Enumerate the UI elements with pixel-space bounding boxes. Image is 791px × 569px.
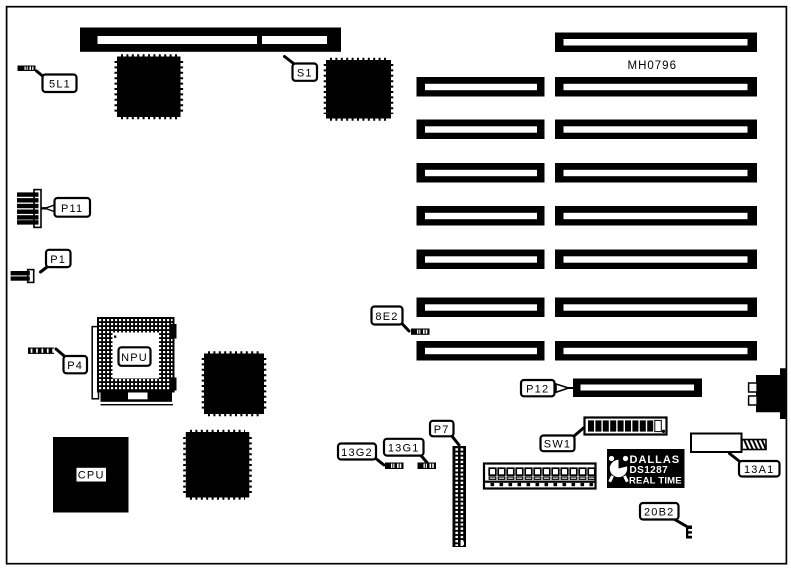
svg-text:DS1287: DS1287 [630,465,669,476]
svg-text:13A1: 13A1 [744,464,775,476]
svg-text:DALLAS: DALLAS [630,454,681,466]
svg-text:REAL TIME: REAL TIME [629,476,682,487]
svg-text:P12: P12 [526,383,549,395]
svg-text:S1: S1 [297,68,313,80]
svg-text:NPU: NPU [121,352,148,364]
svg-text:P11: P11 [61,203,83,215]
svg-text:13G2: 13G2 [341,447,373,459]
svg-text:P1: P1 [50,254,66,266]
svg-text:SW1: SW1 [544,439,571,451]
svg-text:CPU: CPU [78,470,105,482]
svg-text:5L1: 5L1 [49,79,71,91]
svg-text:13G1: 13G1 [388,443,420,455]
svg-text:8E2: 8E2 [375,311,398,323]
svg-text:P7: P7 [434,424,450,436]
svg-text:P4: P4 [67,360,83,372]
svg-text:20B2: 20B2 [644,507,675,519]
svg-text:MH0796: MH0796 [628,60,677,72]
